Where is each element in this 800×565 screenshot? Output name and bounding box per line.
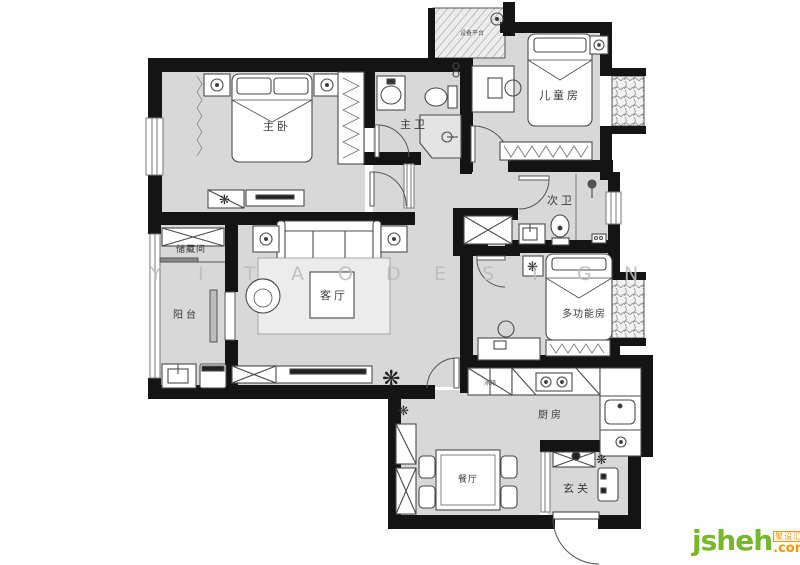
label-kids-room: 儿童房 <box>539 88 581 102</box>
label-second-bath: 次卫 <box>547 193 575 207</box>
balcony-sink <box>162 364 196 388</box>
site-logo: jsheh 聚设汇 .com <box>692 527 800 555</box>
nightstand-left <box>204 74 230 96</box>
floor-drain <box>592 234 606 243</box>
side-table-right <box>381 226 407 252</box>
svg-text:G: G <box>577 263 592 285</box>
bed-kids <box>528 34 592 126</box>
svg-text:N: N <box>624 263 638 285</box>
side-table-left <box>253 226 279 252</box>
nightstand-right <box>314 74 340 96</box>
floor-plan-svg: ❋ ❋ ❋ ❋ ❋ 主卧 主卫 儿童房 次卫 多功能房 客厅 储藏间 阳台 厨房… <box>0 0 800 565</box>
label-equipment-platform: 设备平台 <box>460 29 484 37</box>
label-balcony: 阳台 <box>173 308 199 321</box>
svg-text:S: S <box>482 263 494 285</box>
window-master-left <box>146 118 163 175</box>
shoe-cabinet <box>553 452 595 467</box>
plant-icon: ❋ <box>382 367 400 392</box>
desk-kids <box>472 66 521 112</box>
washing-machine-balcony <box>200 364 226 388</box>
svg-text:E: E <box>434 263 446 285</box>
window-secondbath <box>606 192 621 224</box>
label-master-bath: 主卫 <box>400 118 428 131</box>
label-kitchen: 厨房 <box>538 408 564 421</box>
svg-text:I: I <box>532 263 538 285</box>
svg-text:O: O <box>338 263 353 285</box>
toilet-master-bath <box>425 86 457 108</box>
label-dining: 餐厅 <box>458 473 478 485</box>
planter-north <box>612 76 644 126</box>
label-entry: 玄关 <box>563 481 591 495</box>
planter-east <box>612 278 644 338</box>
bed-master <box>232 74 312 162</box>
tv-cabinet <box>232 366 372 383</box>
sink-master-bath <box>377 76 405 110</box>
svg-text:D: D <box>386 263 401 285</box>
plant-icon: ❋ <box>596 453 607 468</box>
svg-text:T: T <box>243 263 256 285</box>
sofa <box>277 221 381 263</box>
kitchen-counter-right <box>600 368 641 456</box>
storage-cabinet <box>162 228 224 246</box>
svg-text:A: A <box>291 263 304 285</box>
door-entry <box>553 512 599 564</box>
washing-machine-box <box>464 216 512 244</box>
sink-second-bath <box>519 224 545 244</box>
label-living-room: 客厅 <box>320 288 348 302</box>
label-master-bedroom: 主卧 <box>263 120 291 133</box>
plant-icon: ❋ <box>219 193 230 208</box>
label-storage: 储藏间 <box>176 243 206 255</box>
label-fridge: 冰箱 <box>484 379 496 387</box>
label-multi-room: 多功能房 <box>562 307 606 320</box>
svg-text:Y: Y <box>149 263 162 285</box>
entry-cabinet <box>598 468 618 501</box>
dining-tall-cabinets <box>396 424 416 514</box>
kitchen-counter <box>512 368 600 395</box>
wardrobe-multi <box>546 340 610 356</box>
wardrobe-master <box>338 72 364 164</box>
nightstand-kids <box>590 36 608 54</box>
toilet-second-bath <box>551 215 569 245</box>
logo-tld: .com <box>773 542 800 555</box>
wardrobe-kids <box>500 142 592 160</box>
svg-text:I: I <box>198 263 204 285</box>
logo-name: jsheh <box>692 527 772 555</box>
plant-icon: ❋ <box>398 404 409 419</box>
floor-plan-image: ❋ ❋ ❋ ❋ ❋ 主卧 主卫 儿童房 次卫 多功能房 客厅 储藏间 阳台 厨房… <box>0 0 800 565</box>
